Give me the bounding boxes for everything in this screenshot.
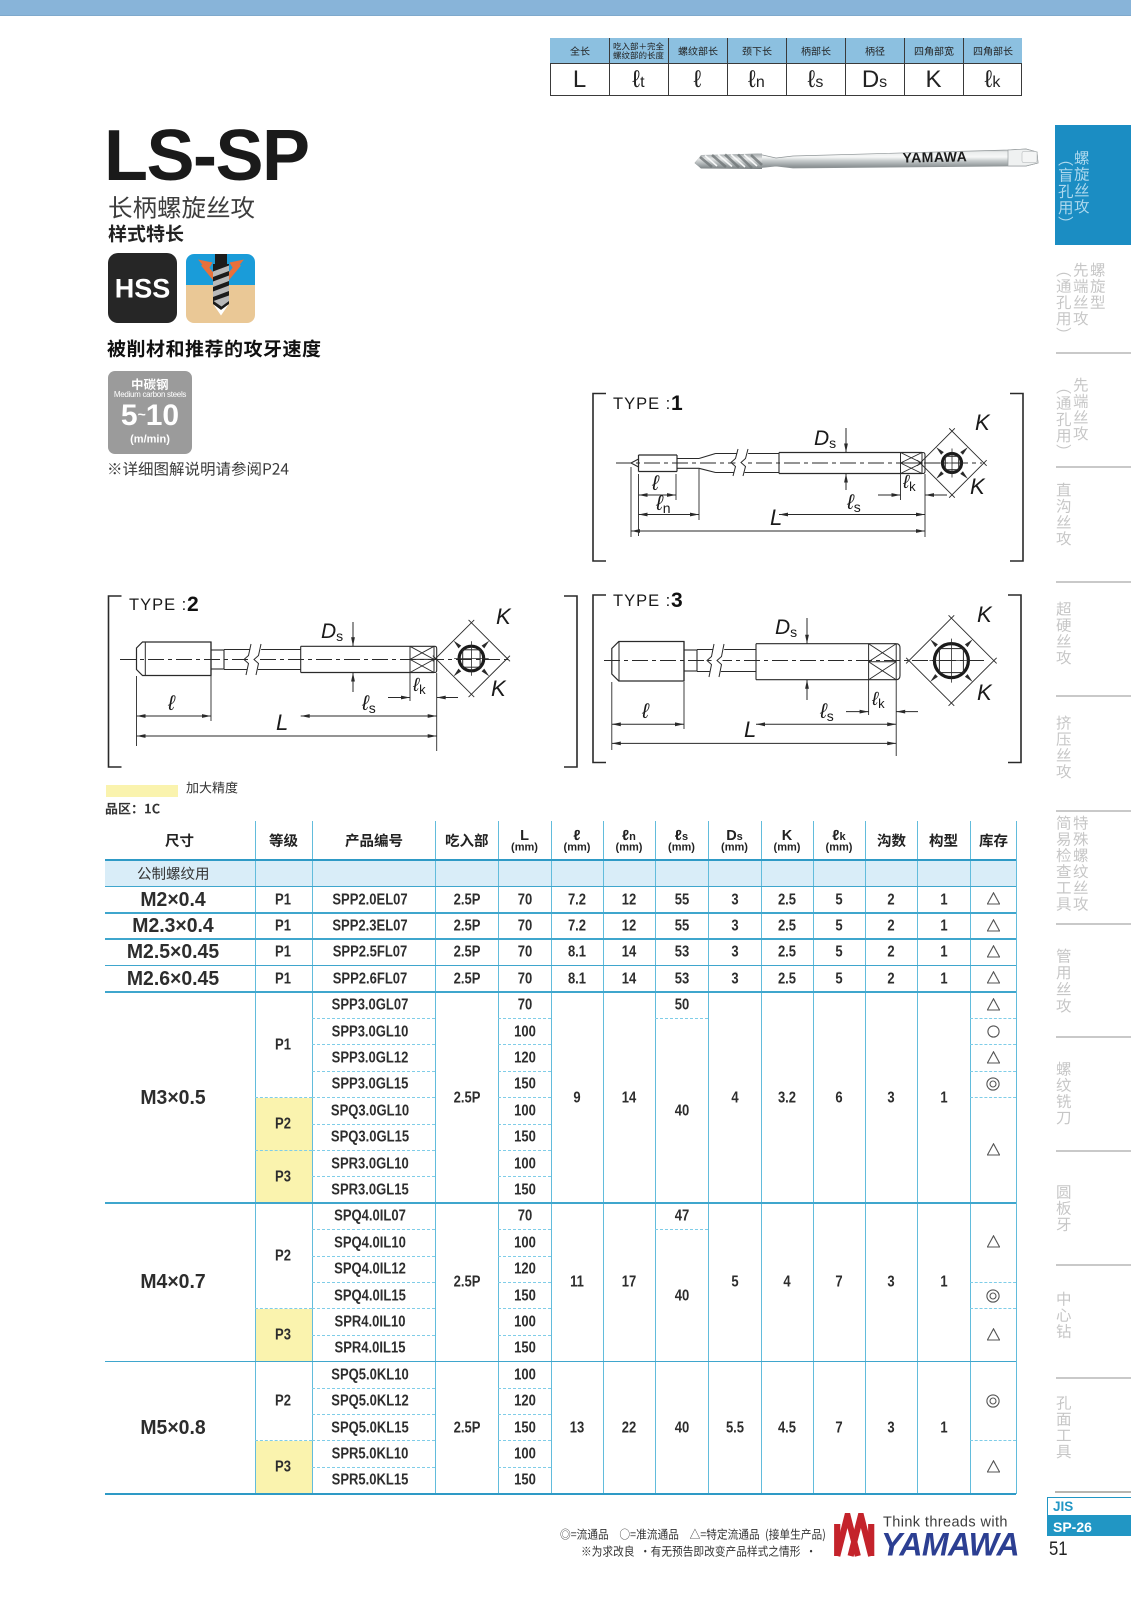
svg-text:ℓs: ℓs bbox=[819, 700, 834, 724]
svg-text:K: K bbox=[975, 410, 991, 435]
svg-text:Ds: Ds bbox=[321, 620, 343, 644]
svg-text:L: L bbox=[744, 717, 756, 742]
svg-text:ℓs: ℓs bbox=[361, 692, 376, 716]
svg-text:ℓs: ℓs bbox=[846, 491, 861, 515]
svg-text:K: K bbox=[977, 680, 993, 705]
svg-text:YAMAWA: YAMAWA bbox=[881, 1527, 1019, 1561]
svg-text:3: 3 bbox=[671, 589, 683, 612]
svg-text:ℓk: ℓk bbox=[871, 689, 885, 711]
svg-text:L: L bbox=[770, 505, 782, 530]
svg-text:ℓ: ℓ bbox=[641, 700, 650, 723]
svg-text:K: K bbox=[496, 604, 512, 629]
svg-text:TYPE :: TYPE : bbox=[129, 596, 187, 614]
svg-text:ℓk: ℓk bbox=[412, 675, 426, 697]
svg-text:ℓ: ℓ bbox=[167, 692, 176, 715]
svg-text:ℓk: ℓk bbox=[902, 472, 916, 494]
svg-text:Ds: Ds bbox=[775, 616, 797, 640]
svg-text:2: 2 bbox=[187, 593, 199, 616]
svg-text:L: L bbox=[276, 710, 288, 735]
svg-text:TYPE :: TYPE : bbox=[613, 395, 671, 413]
svg-text:K: K bbox=[977, 602, 993, 627]
svg-text:TYPE :: TYPE : bbox=[613, 592, 671, 610]
svg-text:1: 1 bbox=[671, 392, 683, 415]
svg-text:YAMAWA: YAMAWA bbox=[902, 148, 967, 165]
svg-text:Ds: Ds bbox=[814, 427, 836, 451]
svg-text:K: K bbox=[970, 474, 986, 499]
svg-text:K: K bbox=[491, 676, 507, 701]
